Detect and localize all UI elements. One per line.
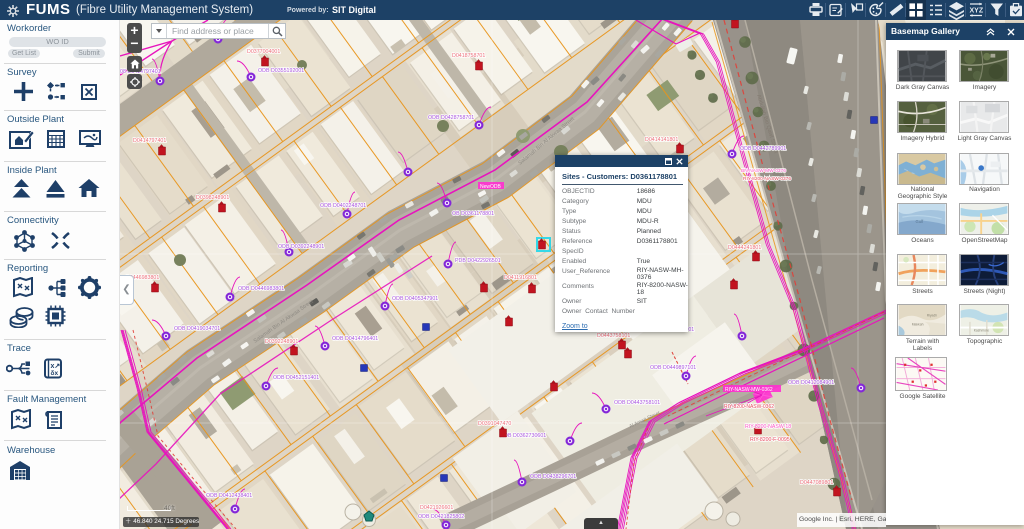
svg-text:NewODB: NewODB	[480, 184, 502, 190]
svg-text:Kashmore: Kashmore	[974, 328, 989, 332]
svg-text:Makkah: Makkah	[912, 323, 924, 327]
svg-text:δx: δx	[51, 370, 59, 377]
svg-text:D0444241801: D0444241801	[728, 245, 761, 251]
svg-text:XYZ: XYZ	[970, 8, 984, 15]
svg-text:ODB D0443758101: ODB D0443758101	[614, 400, 660, 406]
svg-text:ODB D0355192001: ODB D0355192001	[258, 68, 304, 74]
svg-text:ODB D0392248901: ODB D0392248901	[278, 244, 324, 250]
svg-text:RIY-8200-NASW-0362: RIY-8200-NASW-0362	[724, 404, 774, 410]
svg-text:ODB D0405347901: ODB D0405347901	[392, 296, 438, 302]
svg-text:ODB D0442789901: ODB D0442789901	[740, 146, 786, 152]
svg-text:D0392248901: D0392248901	[265, 339, 298, 345]
svg-text:ODB D0414796401: ODB D0414796401	[332, 336, 378, 342]
svg-text:D0421926601: D0421926601	[420, 505, 453, 511]
svg-text:ODB D0402248701: ODB D0402248701	[320, 203, 366, 209]
svg-text:ODB D0362730601: ODB D0362730601	[500, 433, 546, 439]
svg-text:D0377004001: D0377004001	[247, 49, 280, 55]
svg-text:ODB D0452151401: ODB D0452151401	[273, 375, 319, 381]
svg-text:RIY-8200-NASW-0376: RIY-8200-NASW-0376	[743, 176, 791, 182]
svg-text:D0418758701: D0418758701	[452, 53, 485, 59]
svg-text:ODB D0438296701: ODB D0438296701	[530, 474, 576, 480]
svg-text:D0447089801: D0447089801	[800, 480, 833, 486]
svg-text:D0411916801: D0411916801	[504, 275, 537, 281]
svg-text:D0443758101: D0443758101	[597, 333, 630, 339]
svg-text:Riyadh: Riyadh	[927, 313, 938, 317]
svg-text:RIY-NASW-MW-0362: RIY-NASW-MW-0362	[725, 387, 773, 393]
svg-text:ODB D0446983801: ODB D0446983801	[238, 286, 284, 292]
svg-text:ODB D0419034701: ODB D0419034701	[174, 326, 220, 332]
svg-text:ODB D0421825802: ODB D0421825802	[418, 514, 464, 520]
svg-text:RIY-8200-F-0095: RIY-8200-F-0095	[750, 437, 790, 443]
svg-text:RIY-8200-NASW-18: RIY-8200-NASW-18	[745, 424, 791, 430]
svg-text:Gulf: Gulf	[915, 219, 924, 224]
svg-text:BN-NASW-MW-0376: BN-NASW-MW-0376	[741, 168, 786, 174]
svg-text:D0414797401: D0414797401	[133, 138, 166, 144]
svg-text:ODB D0449897101: ODB D0449897101	[650, 365, 696, 371]
svg-text:OB D0361178801: OB D0361178801	[452, 211, 494, 217]
svg-text:ODB D0412438401: ODB D0412438401	[206, 493, 252, 499]
svg-text:ODB D0412084901: ODB D0412084901	[788, 380, 834, 386]
svg-text:ODB D0428758701: ODB D0428758701	[428, 115, 474, 121]
svg-text:D0414141801: D0414141801	[645, 137, 678, 143]
svg-text:x↗: x↗	[51, 363, 61, 370]
svg-text:D0391047470: D0391047470	[478, 421, 511, 427]
svg-text:PDB D0422926501: PDB D0422926501	[455, 258, 501, 264]
svg-text:D0398248901: D0398248901	[196, 195, 229, 201]
